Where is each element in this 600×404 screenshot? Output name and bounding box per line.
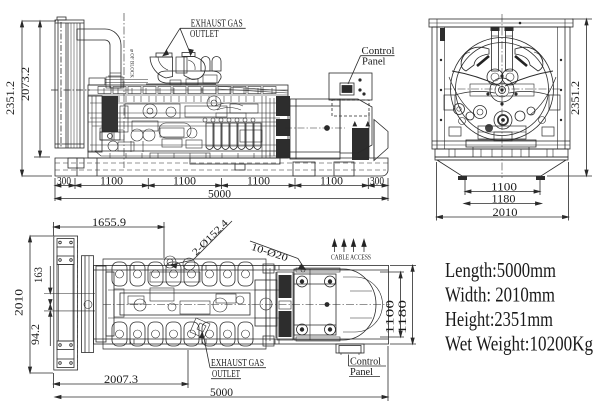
svg-text:1100: 1100 [100, 174, 123, 188]
svg-text:300: 300 [370, 174, 384, 188]
svg-text:2007.3: 2007.3 [104, 372, 138, 386]
svg-text:94.2: 94.2 [28, 324, 42, 345]
svg-text:5000: 5000 [208, 187, 231, 201]
svg-text:2351.2: 2351.2 [3, 81, 17, 115]
svg-text:1180: 1180 [395, 300, 409, 334]
svg-text:OUTLET: OUTLET [190, 29, 219, 40]
svg-text:Length:5000mm: Length:5000mm [445, 258, 556, 282]
svg-text:1100: 1100 [247, 174, 270, 188]
svg-text:2351.2: 2351.2 [568, 81, 582, 115]
svg-text:1100: 1100 [320, 174, 343, 188]
svg-text:⌀ OF BLOCK: ⌀ OF BLOCK [129, 49, 134, 78]
svg-text:300: 300 [57, 174, 71, 188]
svg-text:5000: 5000 [210, 385, 233, 399]
svg-text:Width: 2010mm: Width: 2010mm [445, 283, 555, 307]
svg-text:Height:2351mm: Height:2351mm [445, 307, 553, 331]
svg-text:2-Ø152.4: 2-Ø152.4 [190, 218, 230, 258]
svg-text:CABLE ACCESS: CABLE ACCESS [331, 253, 371, 262]
svg-text:1655.9: 1655.9 [92, 215, 126, 229]
svg-text:1180: 1180 [492, 192, 516, 206]
svg-text:Wet Weight:10200Kg: Wet Weight:10200Kg [445, 332, 593, 356]
svg-text:Panel: Panel [362, 57, 386, 68]
svg-text:2073.2: 2073.2 [18, 67, 32, 101]
svg-text:163: 163 [31, 267, 45, 283]
svg-text:1100: 1100 [173, 174, 196, 188]
svg-text:2010: 2010 [12, 289, 26, 316]
svg-text:2010: 2010 [493, 205, 518, 219]
svg-text:EXHAUST GAS: EXHAUST GAS [191, 19, 243, 30]
